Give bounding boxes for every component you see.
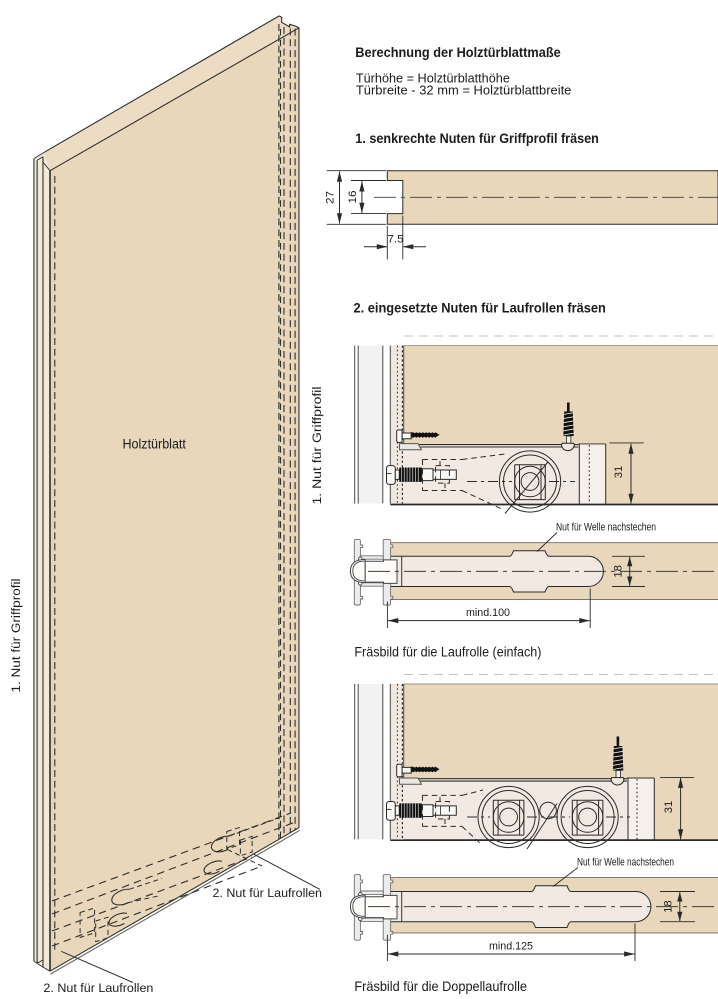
svg-text:31: 31: [663, 801, 675, 814]
svg-text:Fräsbild für die Doppellaufrol: Fräsbild für die Doppellaufrolle: [354, 979, 527, 994]
svg-text:Holztürblatt: Holztürblatt: [123, 436, 186, 452]
svg-text:2. Nut für Laufrollen: 2. Nut für Laufrollen: [213, 886, 323, 900]
svg-text:Berechnung der Holztürblattmaß: Berechnung der Holztürblattmaße: [355, 45, 561, 60]
svg-text:mind.100: mind.100: [466, 607, 510, 619]
svg-text:1. senkrechte Nuten für Griffp: 1. senkrechte Nuten für Griffprofil fräs…: [355, 130, 599, 146]
svg-text:27: 27: [325, 191, 337, 204]
svg-text:31: 31: [613, 466, 625, 479]
svg-text:mind.125: mind.125: [489, 940, 533, 952]
svg-text:7.5: 7.5: [388, 233, 404, 245]
svg-text:2. Nut für Laufrollen: 2. Nut für Laufrollen: [43, 981, 153, 995]
svg-text:Fräsbild für die Laufrolle (ei: Fräsbild für die Laufrolle (einfach): [354, 645, 541, 660]
svg-text:18: 18: [613, 565, 625, 578]
svg-text:16: 16: [347, 191, 359, 204]
svg-text:18: 18: [663, 900, 675, 913]
svg-text:Nut für Welle nachstechen: Nut für Welle nachstechen: [556, 522, 656, 534]
svg-text:1. Nut für Griffprofil: 1. Nut für Griffprofil: [310, 387, 324, 505]
svg-text:Nut für Welle nachstechen: Nut für Welle nachstechen: [577, 857, 674, 869]
svg-text:1. Nut für Griffprofil: 1. Nut für Griffprofil: [9, 579, 23, 693]
svg-text:Türbreite - 32 mm = Holztürbla: Türbreite - 32 mm = Holztürblattbreite: [356, 83, 571, 98]
svg-text:2. eingesetzte Nuten für Laufr: 2. eingesetzte Nuten für Laufrollen fräs…: [354, 300, 606, 316]
